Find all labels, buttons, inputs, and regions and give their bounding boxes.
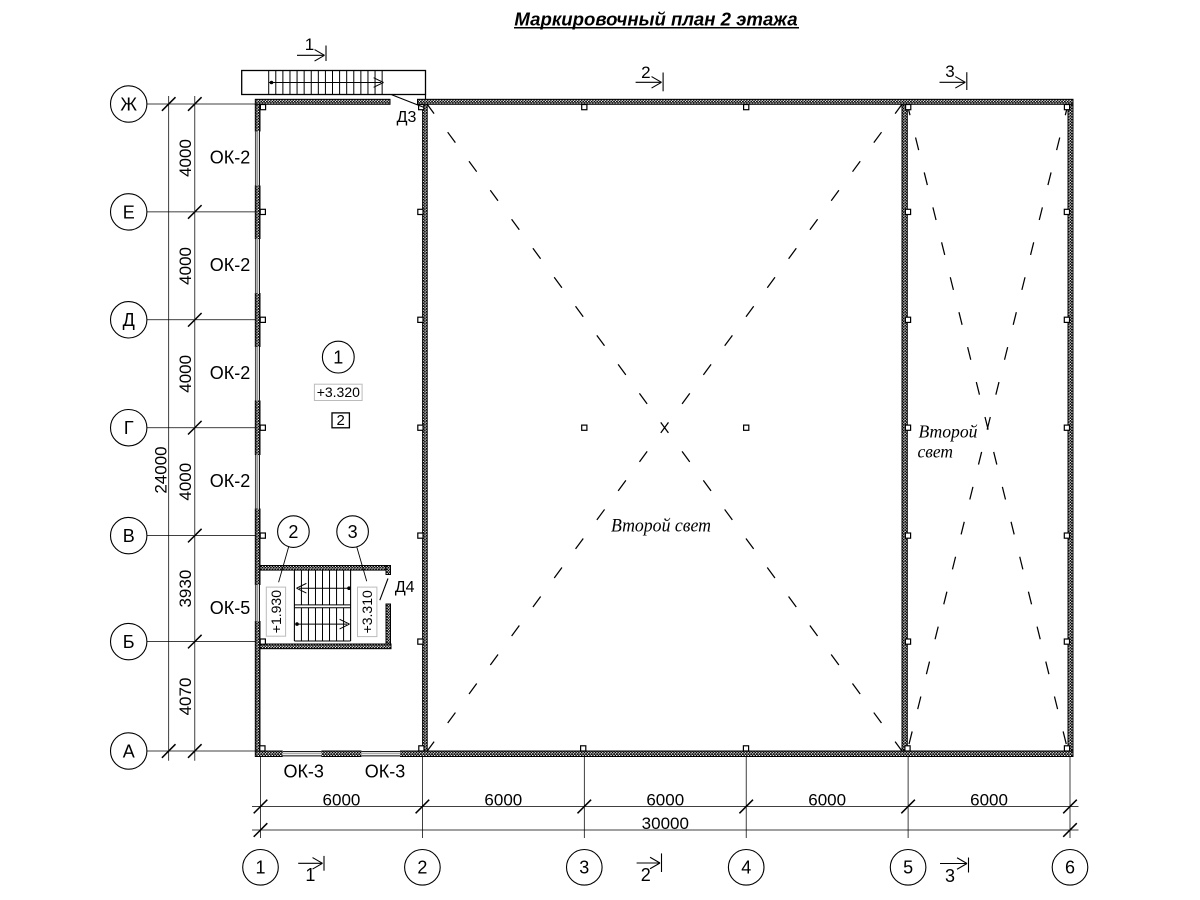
svg-text:свет: свет	[918, 442, 954, 462]
svg-text:24000: 24000	[151, 446, 170, 493]
svg-text:ОК-2: ОК-2	[210, 255, 251, 275]
svg-text:4000: 4000	[176, 355, 195, 393]
svg-text:6000: 6000	[970, 791, 1008, 810]
svg-text:2: 2	[417, 858, 427, 878]
svg-text:3: 3	[945, 866, 955, 886]
svg-text:4000: 4000	[176, 463, 195, 501]
svg-text:2: 2	[641, 63, 650, 82]
svg-text:3: 3	[945, 62, 954, 81]
svg-text:2: 2	[288, 522, 298, 542]
svg-text:ОК-2: ОК-2	[210, 363, 251, 383]
svg-text:Д3: Д3	[397, 109, 417, 126]
svg-text:4000: 4000	[176, 139, 195, 177]
svg-text:Д: Д	[123, 310, 135, 330]
svg-text:6000: 6000	[484, 791, 522, 810]
svg-text:1: 1	[255, 858, 265, 878]
svg-text:Г: Г	[124, 418, 134, 438]
svg-text:3930: 3930	[176, 570, 195, 608]
svg-text:5: 5	[903, 858, 913, 878]
svg-text:ОК-2: ОК-2	[210, 471, 251, 491]
svg-text:Б: Б	[123, 632, 135, 652]
svg-text:2: 2	[641, 865, 651, 885]
svg-text:6000: 6000	[808, 791, 846, 810]
svg-text:4: 4	[741, 858, 751, 878]
svg-text:В: В	[123, 526, 135, 546]
svg-text:+3.310: +3.310	[359, 590, 375, 633]
svg-text:4000: 4000	[176, 247, 195, 285]
svg-text:Второй свет: Второй свет	[611, 516, 711, 537]
svg-text:Ж: Ж	[120, 94, 137, 114]
svg-text:Маркировочный план 2 этажа: Маркировочный план 2 этажа	[514, 8, 797, 29]
svg-text:3: 3	[348, 522, 358, 542]
svg-text:Д4: Д4	[395, 579, 415, 596]
svg-text:ОК-5: ОК-5	[210, 598, 251, 618]
svg-text:Второй: Второй	[919, 422, 978, 442]
svg-text:ОК-3: ОК-3	[365, 762, 406, 782]
svg-text:30000: 30000	[642, 814, 689, 833]
svg-text:4070: 4070	[176, 678, 195, 716]
svg-text:3: 3	[579, 858, 589, 878]
svg-text:2: 2	[337, 412, 345, 429]
svg-text:6000: 6000	[646, 791, 684, 810]
svg-text:А: А	[123, 741, 135, 761]
svg-text:+3.320: +3.320	[317, 384, 360, 400]
svg-text:Е: Е	[123, 202, 135, 222]
svg-text:ОК-3: ОК-3	[283, 762, 324, 782]
svg-text:1: 1	[305, 35, 314, 54]
svg-text:6000: 6000	[323, 791, 361, 810]
svg-text:+1.930: +1.930	[268, 590, 284, 633]
svg-text:6: 6	[1065, 858, 1075, 878]
svg-text:1: 1	[333, 348, 343, 368]
svg-text:ОК-2: ОК-2	[210, 147, 251, 167]
